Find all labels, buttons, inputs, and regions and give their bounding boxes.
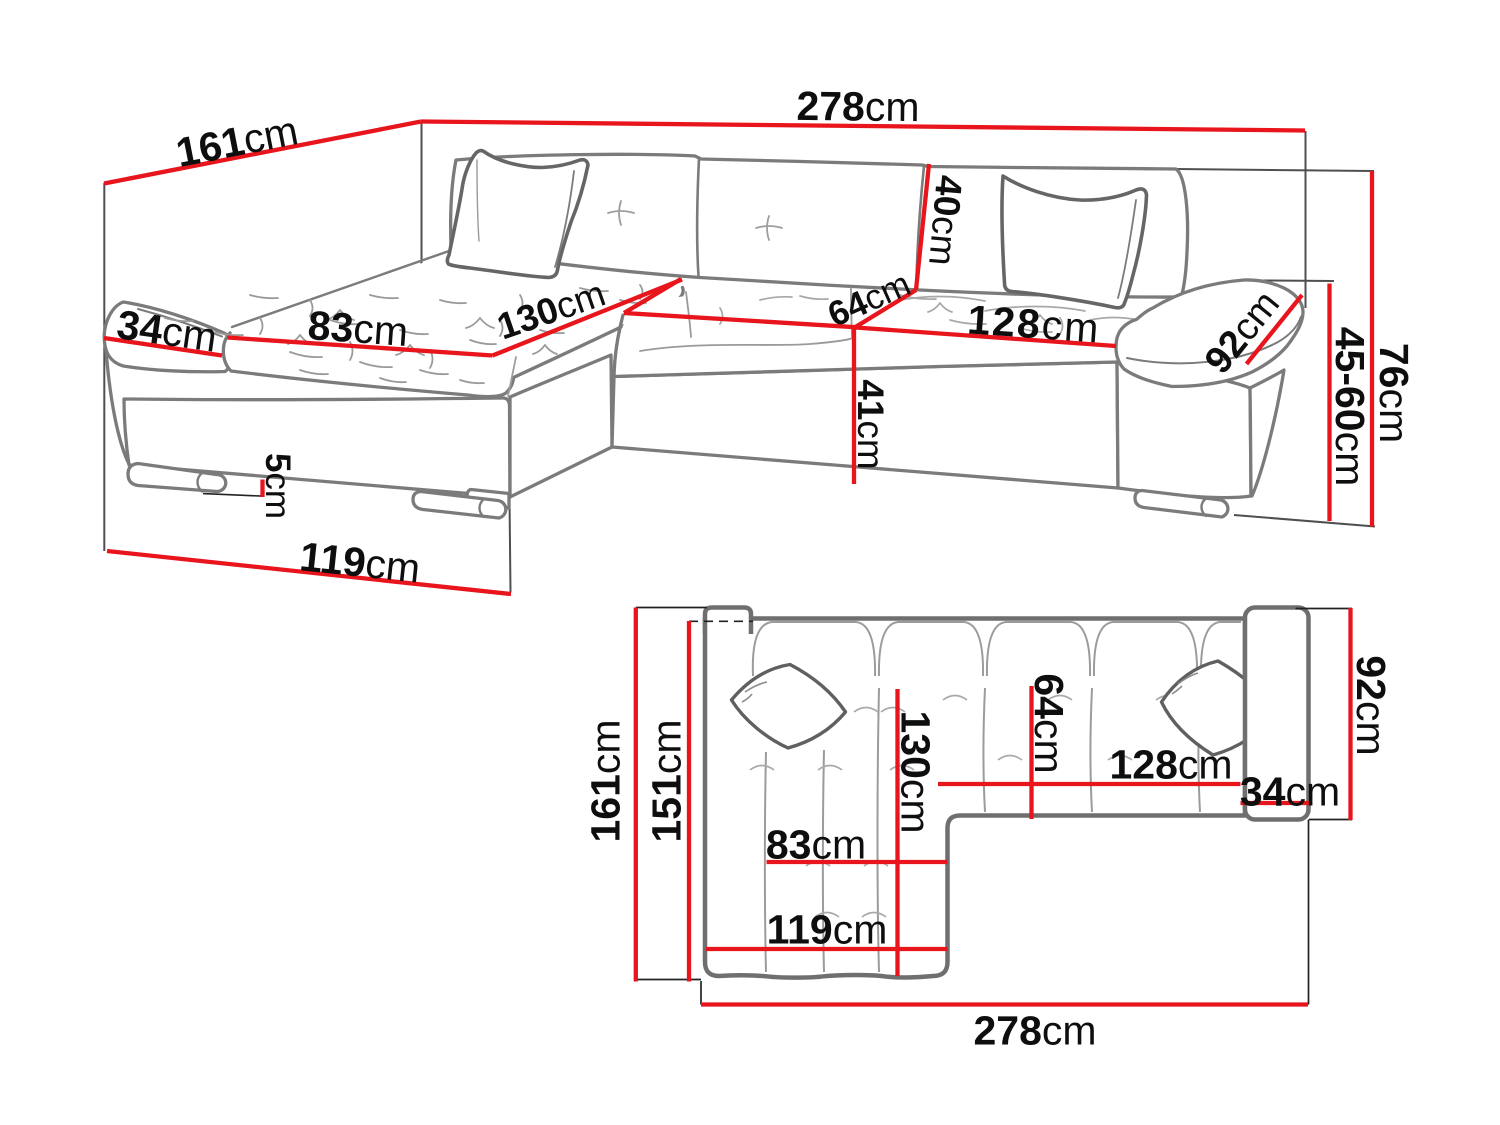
svg-text:128cm: 128cm (966, 296, 1102, 351)
svg-text:130cm: 130cm (893, 710, 939, 833)
svg-text:45-60cm: 45-60cm (1327, 327, 1373, 487)
svg-text:40cm: 40cm (922, 174, 971, 268)
svg-text:41cm: 41cm (851, 379, 892, 469)
svg-text:5cm: 5cm (259, 453, 298, 519)
svg-text:278cm: 278cm (796, 83, 920, 130)
svg-text:64cm: 64cm (1026, 673, 1072, 773)
svg-text:151cm: 151cm (644, 719, 690, 842)
svg-text:34cm: 34cm (1240, 769, 1340, 815)
svg-text:119cm: 119cm (767, 907, 888, 953)
svg-text:278cm: 278cm (973, 1008, 1096, 1054)
svg-text:76cm: 76cm (1371, 343, 1417, 443)
svg-text:83cm: 83cm (766, 822, 866, 868)
svg-text:83cm: 83cm (306, 302, 409, 355)
svg-text:128cm: 128cm (1109, 742, 1232, 788)
svg-text:161cm: 161cm (583, 719, 629, 842)
svg-text:92cm: 92cm (1348, 655, 1394, 755)
